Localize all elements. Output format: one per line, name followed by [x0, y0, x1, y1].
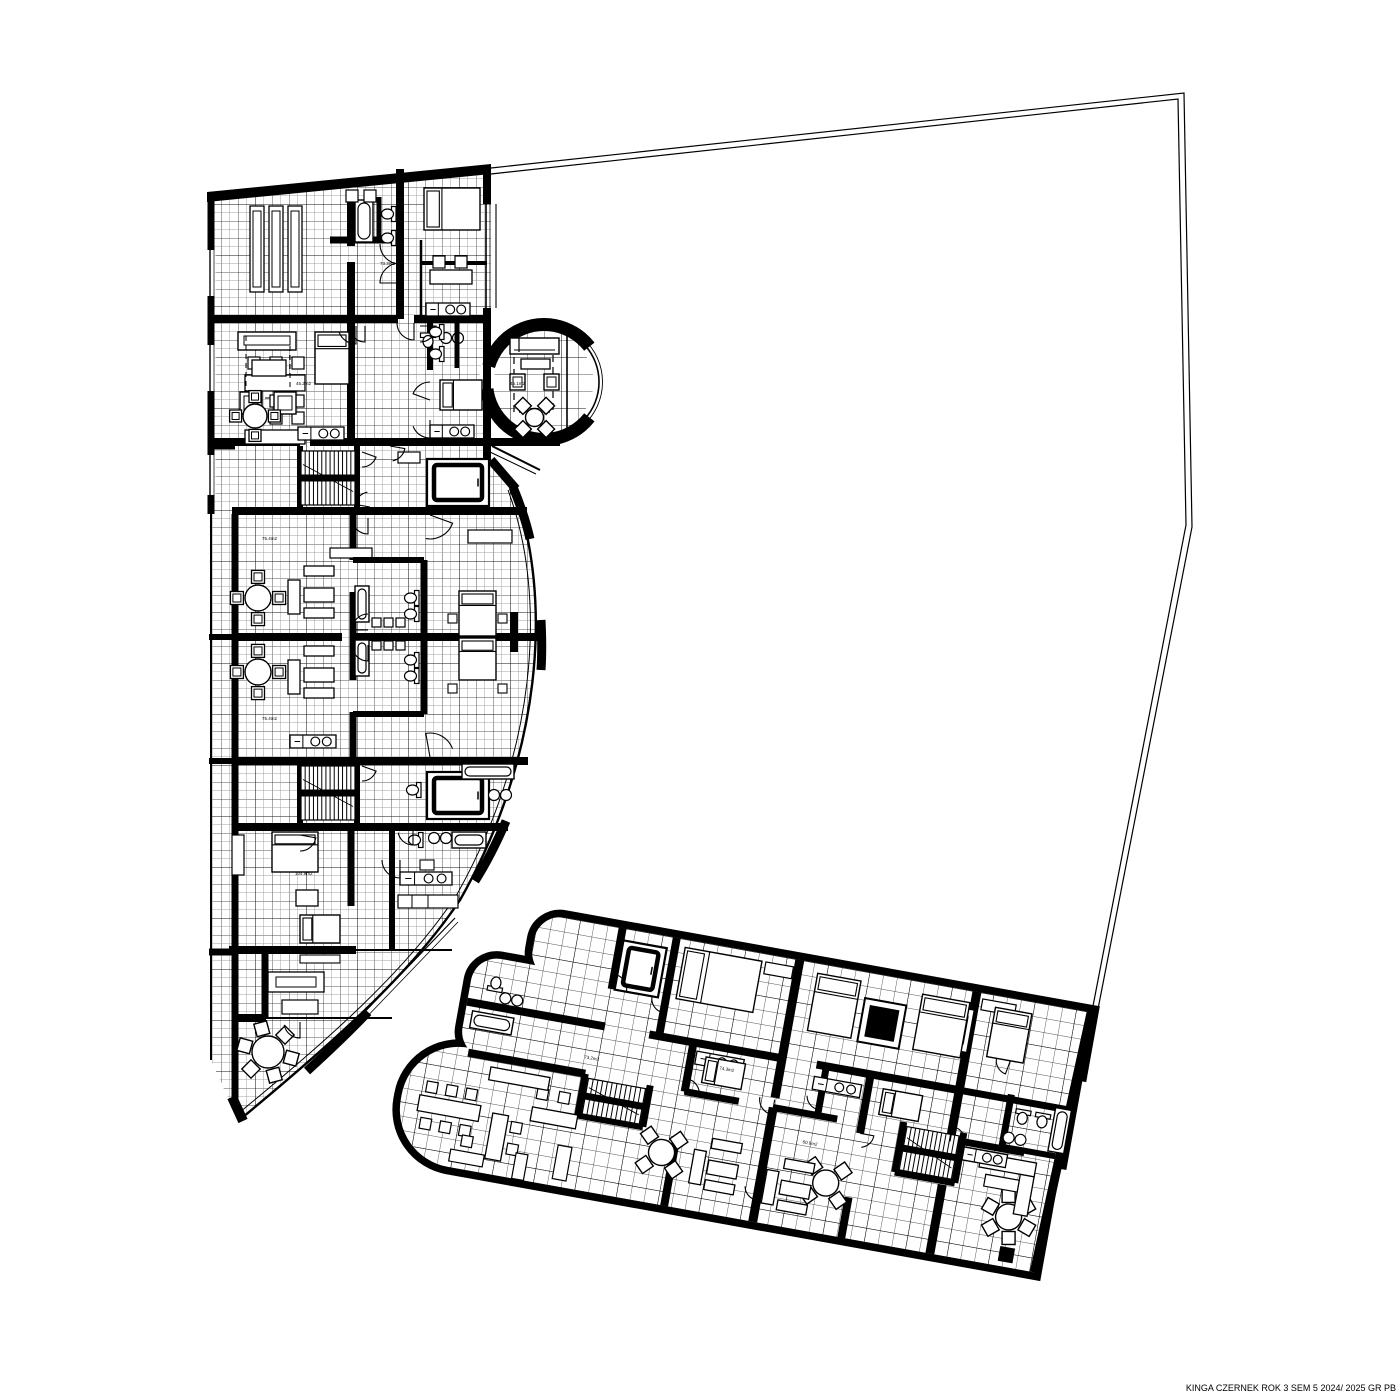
svg-text:45.2m2: 45.2m2: [296, 381, 312, 386]
svg-text:KINGA CZERNEK ROK 3 SEM 5 2024: KINGA CZERNEK ROK 3 SEM 5 2024/ 2025 GR …: [1186, 1383, 1396, 1393]
svg-text:75.4m2: 75.4m2: [262, 536, 278, 541]
svg-text:75.4m2: 75.4m2: [262, 716, 278, 721]
svg-text:104.9m2: 104.9m2: [295, 871, 313, 876]
svg-text:73.3m2: 73.3m2: [380, 261, 396, 266]
svg-text:45.1m2: 45.1m2: [510, 381, 526, 386]
